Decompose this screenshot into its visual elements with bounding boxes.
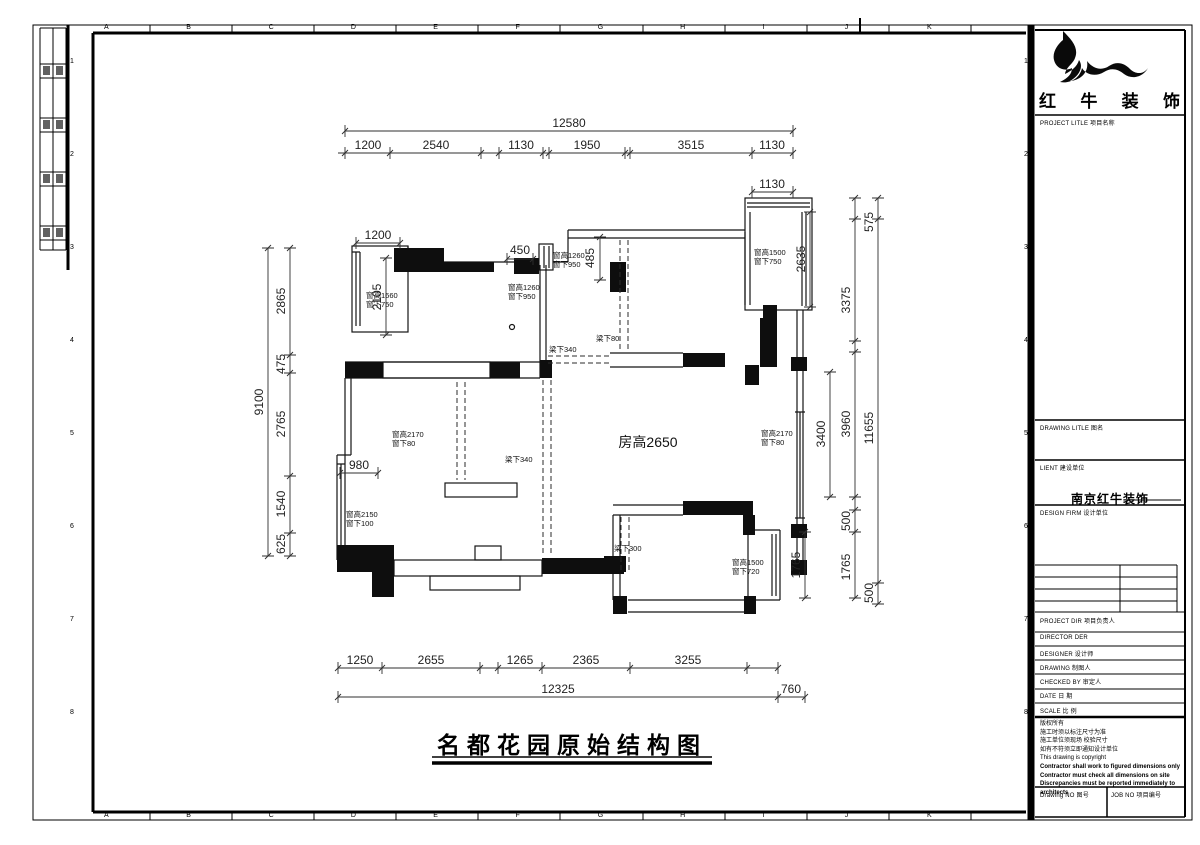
dim-text: 3400 — [814, 420, 828, 447]
drawing-label: DRAWING 制图人 — [1040, 663, 1091, 672]
plan-annotations: 窗高1660 窗下750 窗高1260 窗下950 窗高1260 窗下950 窗… — [346, 247, 793, 576]
ruler-letter: I — [762, 24, 764, 31]
ruler-letter: J — [845, 24, 849, 31]
design-firm-value: 南京红牛装饰 — [1071, 490, 1149, 507]
dim-text: 500 — [839, 511, 853, 531]
copyright-notes: 版权所有施工时须以标注尺寸为准施工单位须现场 校验尺寸如有不符须立即通知设计单位… — [1040, 720, 1180, 797]
dim-text: 475 — [274, 354, 288, 374]
dim-text: 3515 — [678, 138, 705, 152]
drawing-title-label: DRAWING LITLE 图名 — [1040, 423, 1103, 432]
scale-label: SCALE 比 例 — [1040, 706, 1077, 715]
dim-text: 12580 — [552, 116, 586, 130]
dim-text: 2765 — [274, 410, 288, 437]
window-annotation: 窗下80 — [761, 437, 784, 447]
dim-text: 2655 — [418, 653, 445, 667]
dim-text: 2540 — [423, 138, 450, 152]
dim-text: 1200 — [355, 138, 382, 152]
window-annotation: 窗下720 — [732, 566, 760, 576]
window-annotation: 窗高2150 — [346, 509, 378, 519]
room-height-label: 房高2650 — [618, 434, 677, 450]
dim-text: 1130 — [508, 138, 534, 152]
ruler-letter: D — [351, 24, 356, 31]
ruler-bottom: ABCDEFGHIJK — [0, 812, 1200, 821]
design-firm-label: DESIGN FIRM 设计单位 — [1040, 508, 1108, 517]
drawing-title: 名都花园原始结构图 — [432, 726, 712, 760]
ruler-number: 3 — [70, 244, 74, 251]
beam-lines — [457, 240, 629, 572]
copyright-line: 施工单位须现场 校验尺寸 — [1040, 737, 1180, 746]
ruler-letter: I — [762, 812, 764, 819]
ruler-letter: A — [104, 24, 109, 31]
date-label: DATE 日 期 — [1040, 691, 1073, 700]
dim-text: 3960 — [839, 410, 853, 437]
ruler-number: 2 — [70, 151, 74, 158]
ruler-number: 6 — [70, 523, 74, 530]
dim-text: 575 — [862, 212, 876, 232]
window-annotation: 窗高2170 — [392, 429, 424, 439]
ruler-letter: F — [516, 812, 520, 819]
ruler-number: 6 — [1024, 523, 1028, 530]
dim-text: 1540 — [274, 490, 288, 517]
ruler-letter: F — [516, 24, 520, 31]
beam-annotation: 梁下340 — [505, 455, 533, 464]
company-name-char: 装 — [1122, 87, 1139, 112]
ruler-letter: G — [598, 812, 603, 819]
window-annotation: 窗下80 — [392, 438, 415, 448]
ruler-number: 5 — [70, 430, 74, 437]
designer-label: DESIGNER 设计师 — [1040, 649, 1093, 658]
dim-text: 500 — [862, 583, 876, 603]
dimension-lines — [262, 125, 884, 703]
window-annotation: 窗高1260 — [553, 250, 585, 260]
copyright-line: Contractor shall work to figured dimensi… — [1040, 763, 1180, 772]
dim-text: 1265 — [507, 653, 534, 667]
dim-text: 3375 — [839, 286, 853, 313]
ruler-number: 1 — [70, 58, 74, 65]
copyright-line: 施工时须以标注尺寸为准 — [1040, 729, 1180, 738]
drawing-sheet: { "sheet": { "ruler_letters": ["A","B","… — [0, 0, 1200, 845]
dim-text: 1765 — [839, 553, 853, 580]
ruler-letter: G — [598, 24, 603, 31]
ruler-number: 4 — [1024, 337, 1028, 344]
window-annotation: 窗高1500 — [754, 247, 786, 257]
ruler-letter: C — [269, 812, 274, 819]
ruler-letter: J — [845, 812, 849, 819]
dim-text: 1130 — [759, 138, 785, 152]
beam-annotation: 梁下300 — [614, 544, 642, 553]
title-block: 红 牛 装 饰 PROJECT LITLE 项目名称 DRAWING LITLE… — [1035, 30, 1185, 817]
dim-text: 2635 — [794, 245, 808, 272]
ruler-letter: K — [927, 24, 932, 31]
ruler-numbers-left: 12345678 — [70, 0, 80, 845]
dim-text: 625 — [274, 534, 288, 554]
ruler-letter: K — [927, 812, 932, 819]
ruler-number: 7 — [1024, 616, 1028, 623]
beam-annotation: 梁下340 — [549, 345, 577, 354]
window-annotation: 窗高1500 — [732, 557, 764, 567]
company-name-char: 饰 — [1163, 87, 1180, 112]
floor-plan-svg: 12580 1200 2540 1130 1950 3515 1130 1130… — [0, 0, 1200, 845]
project-dir-label: PROJECT DIR 项目负责人 — [1040, 616, 1115, 625]
copyright-line: 如有不符须立即通知设计单位 — [1040, 746, 1180, 755]
window-annotation: 窗下950 — [508, 291, 536, 301]
ruler-letter: D — [351, 812, 356, 819]
copyright-line: Contractor must check all dimensions on … — [1040, 772, 1180, 781]
dim-text: 12325 — [541, 682, 575, 696]
dim-text: 1200 — [365, 228, 392, 242]
ruler-letter: A — [104, 812, 109, 819]
binding-strip-table — [40, 25, 68, 270]
ruler-letter: E — [433, 24, 438, 31]
drawing-no-label: Drawing NO 图号 — [1040, 790, 1089, 799]
window-annotation: 窗下750 — [754, 256, 782, 266]
ruler-number: 1 — [1024, 58, 1028, 65]
ruler-numbers-right: 12345678 — [1024, 0, 1034, 845]
dim-text: 2365 — [573, 653, 600, 667]
company-name-char: 牛 — [1080, 87, 1097, 112]
company-name: 红 牛 装 饰 — [1039, 87, 1180, 112]
dim-text: 11655 — [862, 411, 876, 444]
sheet-frame — [33, 18, 1192, 820]
ruler-number: 2 — [1024, 151, 1028, 158]
company-name-char: 红 — [1039, 87, 1056, 112]
job-no-label: JOB NO 项目编号 — [1111, 790, 1161, 799]
project-title-label: PROJECT LITLE 项目名称 — [1040, 118, 1115, 127]
dim-text: 2865 — [274, 287, 288, 314]
dim-text: 1765 — [789, 551, 803, 578]
ruler-letter: H — [680, 24, 685, 31]
beam-annotation: 梁下80 — [596, 334, 619, 343]
window-annotation: 窗高2170 — [761, 428, 793, 438]
director-label: DIRECTOR DER — [1040, 635, 1088, 641]
dim-text: 485 — [583, 248, 597, 268]
dim-text: 1250 — [347, 653, 374, 667]
dim-text: 3255 — [675, 653, 702, 667]
window-annotation: 窗高1660 — [366, 290, 398, 300]
ruler-letter: E — [433, 812, 438, 819]
ruler-number: 8 — [1024, 709, 1028, 716]
ruler-top: ABCDEFGHIJK — [0, 24, 1200, 33]
checked-by-label: CHECKED BY 审定人 — [1040, 677, 1101, 686]
ruler-letter: H — [680, 812, 685, 819]
window-annotation: 窗下950 — [553, 259, 581, 269]
dim-text: 1130 — [759, 177, 785, 191]
dim-text: 9100 — [252, 388, 266, 415]
ruler-number: 7 — [70, 616, 74, 623]
copyright-line: This drawing is copyright — [1040, 754, 1180, 763]
window-annotation: 窗下750 — [366, 299, 394, 309]
ruler-number: 3 — [1024, 244, 1028, 251]
ruler-number: 4 — [70, 337, 74, 344]
dim-text: 450 — [510, 243, 530, 257]
copyright-line: 版权所有 — [1040, 720, 1180, 729]
ruler-number: 8 — [70, 709, 74, 716]
ruler-letter: B — [186, 812, 191, 819]
dim-text: 1950 — [574, 138, 601, 152]
ruler-number: 5 — [1024, 430, 1028, 437]
dim-text: 760 — [781, 682, 801, 696]
ruler-letter: C — [269, 24, 274, 31]
window-annotation: 窗下100 — [346, 518, 374, 528]
window-annotation: 窗高1260 — [508, 282, 540, 292]
ruler-letter: B — [186, 24, 191, 31]
client-label: LIENT 建设单位 — [1040, 463, 1085, 472]
dim-text: 980 — [349, 458, 369, 472]
